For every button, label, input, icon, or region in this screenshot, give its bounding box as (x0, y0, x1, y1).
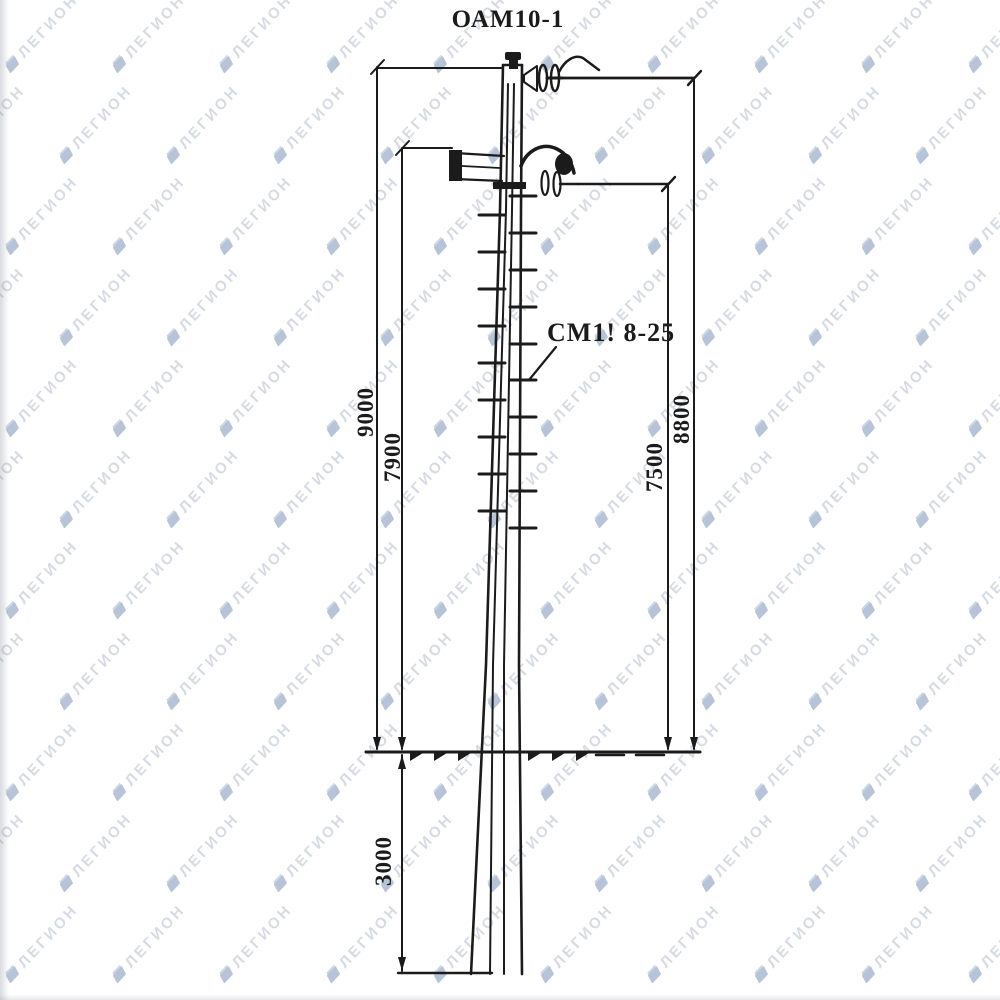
drawing-title: ОАМ10-1 (408, 6, 608, 34)
dim-label-right-outer: 8800 (669, 369, 695, 469)
ground-line (366, 752, 700, 761)
dim-label-right-inner: 7500 (642, 417, 668, 517)
dim-label-left-outer: 9000 (353, 362, 379, 462)
dim-label-left-inner: 7900 (380, 407, 406, 507)
callout-leader-line (529, 347, 556, 380)
crossarm-assembly (449, 146, 668, 196)
top-insulator-assembly (505, 52, 694, 91)
pole-body (471, 65, 522, 974)
scanned-pole-diagram-page: ЛЕГИОНЛЕГИОНЛЕГИОНЛЕГИОНЛЕГИОНЛЕГИОНЛЕГИ… (0, 0, 1000, 1000)
callout-label: СМ1! 8-25 (547, 318, 675, 348)
dim-label-underground: 3000 (371, 811, 397, 911)
pole-drawing (0, 0, 1000, 1000)
